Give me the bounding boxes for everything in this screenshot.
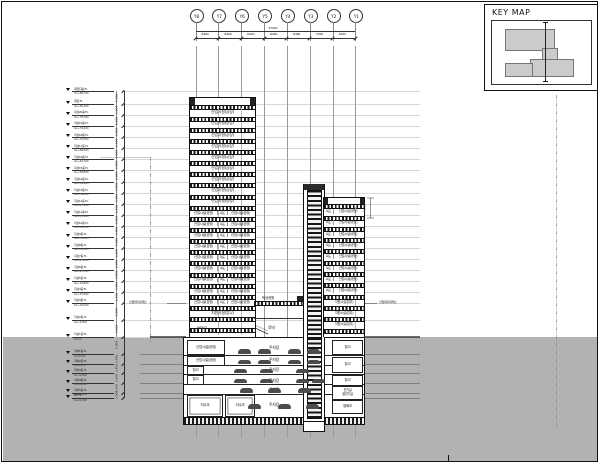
car-icon [307,349,320,354]
level-elevation: GL+66,600 [74,149,88,152]
basement-section: 산업시설(공장) 산업시설(공장) 창고 창고 저수조 저수조 창고 창고 창고… [183,337,365,425]
level-flag-icon [66,167,70,170]
vdim-segment-label: 3,900 [114,128,118,137]
car-icon [312,379,325,384]
floor-label: 산업시설(공장) [190,110,255,115]
car-icon [248,404,261,409]
level-elevation: GL+70,500 [74,138,88,141]
level-elevation: GL+74,400 [74,127,88,130]
vdim-segment-label: 3,400 [114,374,118,383]
core-height-dim-label: 4,500 [362,204,366,213]
floor-label: 산업시설(공장) [227,266,254,271]
vdim-segment-label: 3,900 [114,293,118,302]
level-elevation: GL-21,600 [74,399,87,402]
floor-label: 산업시설(공장) [190,121,255,126]
segment-dim-label: 8,400 [224,33,231,36]
level-marker: 지상7층 FLGL+27,600 [64,254,114,263]
floor-label: 산업시설(공장) [227,222,254,227]
level-elevation: GL+54,900 [74,182,88,185]
key-map-section-line [545,23,546,82]
floor-label: 산업시설(공장) [190,289,217,294]
floor-label: 산업시설(공장) [190,144,255,149]
level-marker: 지상14층 FLGL+54,900 [64,177,114,186]
level-flag-icon [66,370,70,373]
level-elevation: GL+19,800 [74,282,88,285]
vdim-segment-label: 3,900 [114,183,118,192]
vdim-segment-label: 3,900 [114,105,118,114]
level-elevation: GL+51,000 [74,193,88,196]
floor-label: 산업시설(공장) [333,266,363,271]
key-map-building-lower-left [505,63,533,77]
car-icon [288,360,301,365]
vdim-segment-label: 3,900 [114,282,118,291]
floor-label: 지원시설(업무) [190,311,255,316]
level-marker: 지상8층 FLGL+31,500 [64,243,114,252]
vdim-segment-label: 6,000 [114,324,118,333]
level-flag-icon [66,112,70,115]
level-marker: 지상18층 FLGL+70,500 [64,133,114,142]
vdim-segment-label: 3,900 [114,260,118,269]
lobby-label: 로비 [268,326,275,331]
floor-slab [190,317,255,322]
segment-dim-label: 8,400 [201,33,208,36]
car-icon [234,379,247,384]
level-marker: 지상20층 FLGL+78,300 [64,111,114,120]
floor-label: 산업시설(공장) [333,254,363,259]
key-map-building-lower-right [530,59,574,77]
level-elevation: GL+27,600 [74,259,88,262]
level-flag-icon [66,245,70,248]
level-elevation: GL+62,700 [74,160,88,163]
floor-label: 산업시설(공장) [190,300,217,305]
segment-dim-label: 8,400 [293,33,300,36]
floor-label: 지원시설(업무) [324,300,364,305]
level-elevation: GL+12,000 [74,304,88,307]
car-icon [240,388,253,393]
level-marker: 지상11층 FLGL+43,200 [64,210,114,219]
level-marker: 지상12층 FLGL+47,100 [64,199,114,208]
boundary-callout-left: 인접대지경계선 [129,301,146,304]
level-flag-icon [66,300,70,303]
level-flag-icon [66,360,70,363]
level-marker: 지하2층 FLGL-9,400 [64,359,114,368]
segment-dim-line [196,38,356,39]
car-icon [288,349,301,354]
car-icon [238,360,251,365]
core-pit [303,421,325,432]
floor-label: 산업시설(공장) [190,233,217,238]
floor-label: 지원시설(업무) [324,322,364,327]
grid-bubble: Y8 [190,9,204,23]
level-elevation: GL±0 [74,338,81,341]
segment-dim-label: 7,500 [316,33,323,36]
floor-label: 산업시설(공장) [333,209,363,214]
level-flag-icon [66,222,70,225]
level-flag-icon [66,156,70,159]
grid-bubble: Y3 [304,9,318,23]
level-marker: 지하1층 FLGL-6,000 [64,349,114,358]
vdim-line [124,91,125,398]
floor-label: 산업시설(공장) [190,277,217,282]
grid-bubble: Y4 [281,9,295,23]
level-flag-icon [66,389,70,392]
floor-label: 산업시설(공장) [333,243,363,248]
car-icon [307,360,320,365]
floor-label: 산업시설(공장) [190,166,255,171]
level-marker: 지상1층 FLGL±0 [64,332,114,341]
grid-bubble: Y5 [258,9,272,23]
floor-label: 산업시설(공장) [227,233,254,238]
level-flag-icon [66,101,70,104]
fold-tick [448,455,449,462]
floor-label: 산업시설(공장) [227,289,254,294]
drawing-sheet: 산업시설(공장)산업시설(공장)산업시설(공장)산업시설(공장)산업시설(공장)… [0,0,600,464]
level-elevation: GL+58,800 [74,171,88,174]
car-icon [238,349,251,354]
vdim-segment-label: 3,900 [114,238,118,247]
floor-label: 산업시설(공장) [190,255,217,260]
level-flag-icon [66,189,70,192]
total-dim-label: 57,600 [268,27,277,30]
vdim-segment-label: 4,500 [114,94,118,103]
level-flag-icon [66,395,70,398]
left-tower-section: 산업시설(공장)산업시설(공장)산업시설(공장)산업시설(공장)산업시설(공장)… [189,97,256,338]
roof-garden-label: 옥상정원 [262,296,274,301]
level-elevation: GL+31,500 [74,248,88,251]
level-marker: 지상9층 FLGL+35,400 [64,232,114,241]
level-marker: 옥탑지붕 FLGL+86,700 [64,87,114,96]
level-elevation: GL+15,900 [74,293,88,296]
segment-dim-label: 8,100 [339,33,346,36]
level-elevation: GL+82,200 [74,105,88,108]
section-line-tick [543,22,548,23]
vdim-segment-label: 3,900 [114,150,118,159]
floor-label: 지원시설(업무) [324,311,364,316]
level-marker: 지상10층 FLGL+39,300 [64,221,114,230]
level-elevation: GL+78,300 [74,116,88,119]
floor-label: 산업시설(공장) [190,155,255,160]
level-flag-icon [66,178,70,181]
level-marker: 지상13층 FLGL+51,000 [64,188,114,197]
vdim-segment-label: 6,000 [114,341,118,350]
vdim-segment-label: 3,900 [114,249,118,258]
floor-label: 산업시설(공장) [333,288,363,293]
vdim-segment-label: 3,900 [114,271,118,280]
level-elevation: GL+86,700 [74,92,88,95]
level-flag-icon [66,234,70,237]
key-map-site-box [491,20,592,85]
level-elevation: GL+43,200 [74,215,88,218]
car-icon [258,349,271,354]
grid-bubble: Y2 [327,9,341,23]
vdim-segment-label: 3,900 [114,216,118,225]
level-marker: 옥탑 FLGL+82,200 [64,100,114,109]
level-elevation: GL+6,000 [74,321,87,324]
level-flag-icon [66,256,70,259]
level-flag-icon [66,200,70,203]
level-flag-icon [66,289,70,292]
car-icon [268,388,281,393]
right-tower-section: 복도산업시설(공장)복도산업시설(공장)복도산업시설(공장)복도산업시설(공장)… [323,197,365,338]
car-icon [258,360,271,365]
mdf-label: MDF실 [197,326,207,331]
vdim-segment-label: 3,900 [114,227,118,236]
floor-label: 산업시설(공장) [227,244,254,249]
floor-label: 산업시설(공장) [190,133,255,138]
floor-label: 산업시설(공장) [227,255,254,260]
floor-label: 산업시설(공장) [333,232,363,237]
floor-slab [324,329,364,334]
level-marker: 지하3층 FLGL-12,800 [64,369,114,378]
key-map-panel: KEY MAP [484,4,598,91]
level-marker: 지하4층 FLGL-16,200 [64,378,114,387]
level-flag-icon [66,278,70,281]
vdim-segment-label: 2,000 [114,391,118,400]
floor-label: 산업시설(공장) [227,277,254,282]
level-marker: 지상2층 FLGL+6,000 [64,315,114,324]
level-flag-icon [66,123,70,126]
car-icon [296,379,309,384]
level-elevation: GL+35,400 [74,237,88,240]
segment-dim-label: 8,400 [247,33,254,36]
vdim-segment-label: 3,400 [114,355,118,364]
level-elevation: GL+23,700 [74,270,88,273]
podium-roof-slab [254,301,303,306]
level-flag-icon [66,88,70,91]
level-flag-icon [66,351,70,354]
level-marker: 지상5층 FLGL+19,800 [64,276,114,285]
car-icon [298,388,311,393]
key-map-title: KEY MAP [492,8,530,17]
car-icon [296,369,309,374]
podium-section: 옥상정원 로비 [254,296,303,337]
level-marker: 지상15층 FLGL+58,800 [64,166,114,175]
level-marker: 지상16층 FLGL+62,700 [64,155,114,164]
podium-slab-line [254,318,303,319]
boundary-callout-right: 인접대지경계선 [379,301,396,304]
vdim-segment-label: 3,900 [114,139,118,148]
vdim-segment-label: 6,000 [114,307,118,316]
level-marker: 지상4층 FLGL+15,900 [64,287,114,296]
segment-dim-label: 8,400 [270,33,277,36]
floor-label: 산업시설(공장) [190,199,255,204]
vdim-segment-label: 3,900 [114,194,118,203]
car-icon [260,369,273,374]
level-name: 지상5층 FL [74,277,86,280]
level-flag-icon [66,380,70,383]
floor-label: 산업시설(공장) [333,220,363,225]
level-flag-icon [66,211,70,214]
car-icon [306,404,319,409]
floor-label: 산업시설(공장) [190,211,217,216]
level-flag-icon [66,317,70,320]
level-flag-icon [66,145,70,148]
level-elevation: GL-16,200 [74,383,87,386]
floor-label: 산업시설(공장) [190,177,255,182]
level-flag-icon [66,334,70,337]
level-elevation: GL-6,000 [74,355,85,358]
level-marker: 지상6층 FLGL+23,700 [64,265,114,274]
vdim-segment-label: 3,900 [114,116,118,125]
level-elevation: GL+39,300 [74,226,88,229]
car-icon [278,404,291,409]
vdim-segment-label: 3,900 [114,161,118,170]
level-flag-icon [66,134,70,137]
floor-label: 산업시설(공장) [190,266,217,271]
floor-label: 산업시설(공장) [227,211,254,216]
section-line-tick [543,81,548,82]
level-marker: PIT FLGL-21,600 [64,394,114,403]
vdim-segment-label: 3,900 [114,205,118,214]
vdim-segment-label: 3,900 [114,172,118,181]
level-elevation: GL-12,800 [74,374,87,377]
floor-label: 산업시설(공장) [227,300,254,305]
level-elevation: GL+47,100 [74,204,88,207]
floor-label: 산업시설(공장) [190,188,255,193]
level-marker: 지상17층 FLGL+66,600 [64,144,114,153]
floor-label: 산업시설(공장) [190,244,217,249]
level-marker: 지상19층 FLGL+74,400 [64,122,114,131]
car-icon [234,369,247,374]
floor-label: 산업시설(공장) [190,222,217,227]
level-flag-icon [66,267,70,270]
car-icon [260,379,273,384]
vdim-segment-label: 3,400 [114,364,118,373]
floor-label: 산업시설(공장) [333,277,363,282]
level-marker: 지상3층 FLGL+12,000 [64,298,114,307]
